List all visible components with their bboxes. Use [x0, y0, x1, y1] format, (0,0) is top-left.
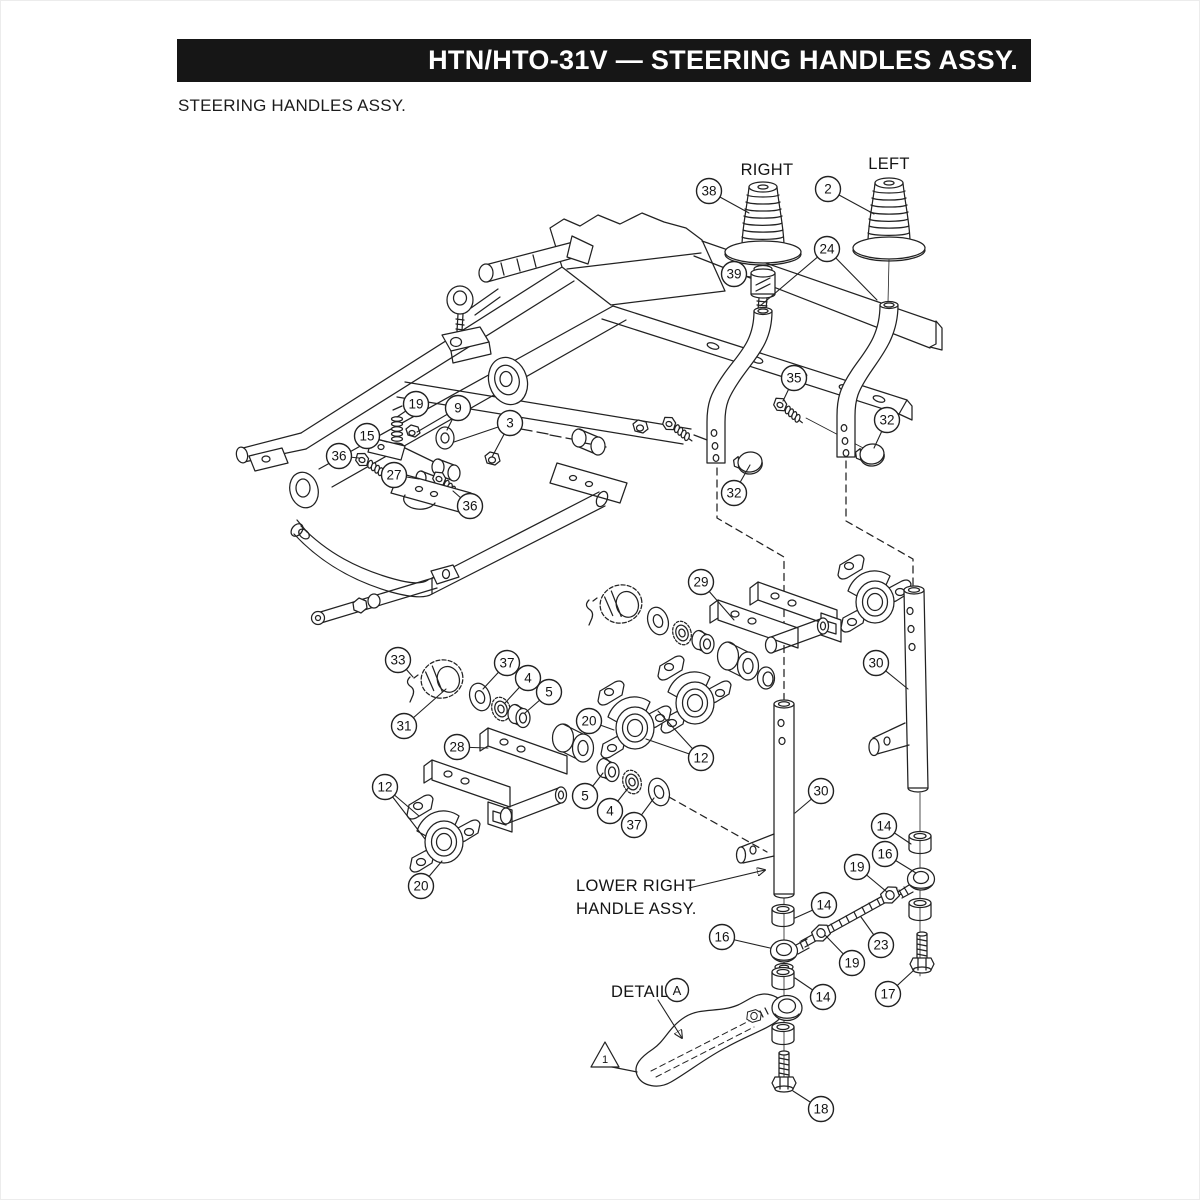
- right-stack: [898, 793, 935, 976]
- callout-35: 35: [782, 366, 807, 402]
- callout-39: 39: [722, 262, 752, 287]
- label-right: RIGHT: [741, 161, 794, 179]
- callout-16: 16: [710, 925, 771, 950]
- svg-text:24: 24: [819, 242, 835, 257]
- svg-text:5: 5: [545, 685, 553, 700]
- svg-text:14: 14: [876, 819, 892, 834]
- svg-text:12: 12: [377, 780, 392, 795]
- svg-text:2: 2: [824, 182, 832, 197]
- svg-text:20: 20: [581, 714, 596, 729]
- svg-text:3: 3: [506, 416, 514, 431]
- lower-right-leader: [689, 870, 765, 888]
- callout-18: 18: [793, 1091, 834, 1122]
- sleeve: [718, 642, 759, 680]
- label-left: LEFT: [868, 155, 910, 173]
- bearing-20: [598, 681, 671, 758]
- detail-arm: [636, 994, 802, 1086]
- svg-text:9: 9: [454, 401, 462, 416]
- callout-29: 29: [689, 570, 735, 621]
- svg-text:30: 30: [868, 656, 883, 671]
- bushing-5: [597, 759, 619, 782]
- spacer-14: [772, 905, 794, 927]
- washer-37: [644, 605, 672, 638]
- svg-text:35: 35: [786, 371, 801, 386]
- callout-31: 31: [392, 689, 447, 739]
- left-grip: [853, 178, 925, 302]
- callout-14: 14: [872, 814, 912, 845]
- bearing-20: [407, 795, 480, 872]
- manual-page: HTN/HTO-31V — STEERING HANDLES ASSY. STE…: [0, 0, 1200, 1200]
- callout-layer: 3823924353232199315362736293033374531202…: [327, 177, 917, 1122]
- callout-5: 5: [573, 773, 604, 809]
- note-triangle: 1: [591, 1042, 637, 1072]
- svg-text:36: 36: [331, 449, 346, 464]
- callout-19: 19: [397, 392, 429, 418]
- callout-36: 36: [327, 444, 360, 469]
- svg-text:4: 4: [524, 671, 532, 686]
- svg-text:33: 33: [390, 653, 405, 668]
- callout-36: 36: [453, 491, 483, 519]
- callout-20: 20: [577, 709, 615, 734]
- rod-end-16: [908, 868, 935, 890]
- svg-text:16: 16: [714, 930, 729, 945]
- svg-text:14: 14: [815, 990, 831, 1005]
- callout-23: 23: [861, 917, 894, 958]
- left-stack: [771, 898, 810, 1092]
- right-grip: [725, 182, 801, 265]
- frame-hardware: [353, 406, 715, 513]
- bearing-12: [658, 656, 731, 733]
- bearing-12: [838, 555, 911, 632]
- svg-text:39: 39: [726, 267, 741, 282]
- bushing-5: [508, 705, 530, 728]
- svg-text:30: 30: [813, 784, 828, 799]
- svg-text:4: 4: [606, 804, 614, 819]
- svg-text:5: 5: [581, 789, 589, 804]
- svg-text:19: 19: [849, 860, 864, 875]
- label-lower-right-2: HANDLE ASSY.: [576, 900, 697, 918]
- svg-text:23: 23: [873, 938, 888, 953]
- svg-text:38: 38: [701, 184, 716, 199]
- svg-text:14: 14: [816, 898, 832, 913]
- svg-text:16: 16: [877, 847, 892, 862]
- svg-text:15: 15: [359, 429, 374, 444]
- svg-text:29: 29: [693, 575, 708, 590]
- svg-text:19: 19: [408, 397, 423, 412]
- svg-text:31: 31: [396, 719, 411, 734]
- callout-19: 19: [825, 935, 865, 976]
- spacer: [772, 1023, 794, 1045]
- callout-30: 30: [795, 779, 834, 814]
- svg-text:17: 17: [880, 987, 895, 1002]
- callout-37: 37: [622, 798, 655, 838]
- svg-text:28: 28: [449, 740, 464, 755]
- svg-text:32: 32: [879, 413, 894, 428]
- svg-text:12: 12: [693, 751, 708, 766]
- callout-38: 38: [697, 179, 750, 214]
- svg-text:32: 32: [726, 486, 741, 501]
- callout-2: 2: [816, 177, 875, 215]
- callout-33: 33: [386, 648, 414, 678]
- bolt-17: [910, 932, 934, 973]
- svg-text:19: 19: [844, 956, 859, 971]
- callout-28: 28: [445, 735, 489, 760]
- callout-14: 14: [795, 893, 837, 919]
- svg-text:37: 37: [499, 656, 514, 671]
- gear-4: [620, 768, 645, 796]
- gear-4: [670, 619, 695, 647]
- coupler: [596, 580, 646, 628]
- frame-structure: [235, 213, 942, 625]
- svg-text:36: 36: [462, 499, 477, 514]
- washer-37: [466, 681, 494, 714]
- callout-17: 17: [876, 970, 915, 1007]
- callout-37: 37: [483, 651, 520, 690]
- lower-left-tube-30: [737, 700, 795, 898]
- label-detail: DETAIL: [611, 983, 669, 1001]
- svg-text:20: 20: [413, 879, 428, 894]
- svg-text:27: 27: [386, 468, 401, 483]
- svg-text:1: 1: [602, 1054, 608, 1066]
- exploded-diagram: RIGHT LEFT LOWER RIGHT HANDLE ASSY. DETA…: [1, 1, 1200, 1200]
- coupler-31: [417, 655, 467, 703]
- lower-left-lever: [312, 565, 460, 625]
- knob-32-right: [733, 450, 764, 476]
- spacer-14: [772, 968, 794, 990]
- callout-30: 30: [864, 651, 909, 690]
- rod-end-16: [771, 940, 798, 962]
- bushing-5: [692, 631, 714, 654]
- detail-a-letter: A: [673, 983, 682, 998]
- svg-text:18: 18: [813, 1102, 828, 1117]
- label-lower-right-1: LOWER RIGHT: [576, 877, 696, 895]
- svg-text:37: 37: [626, 818, 641, 833]
- callout-32: 32: [874, 408, 900, 449]
